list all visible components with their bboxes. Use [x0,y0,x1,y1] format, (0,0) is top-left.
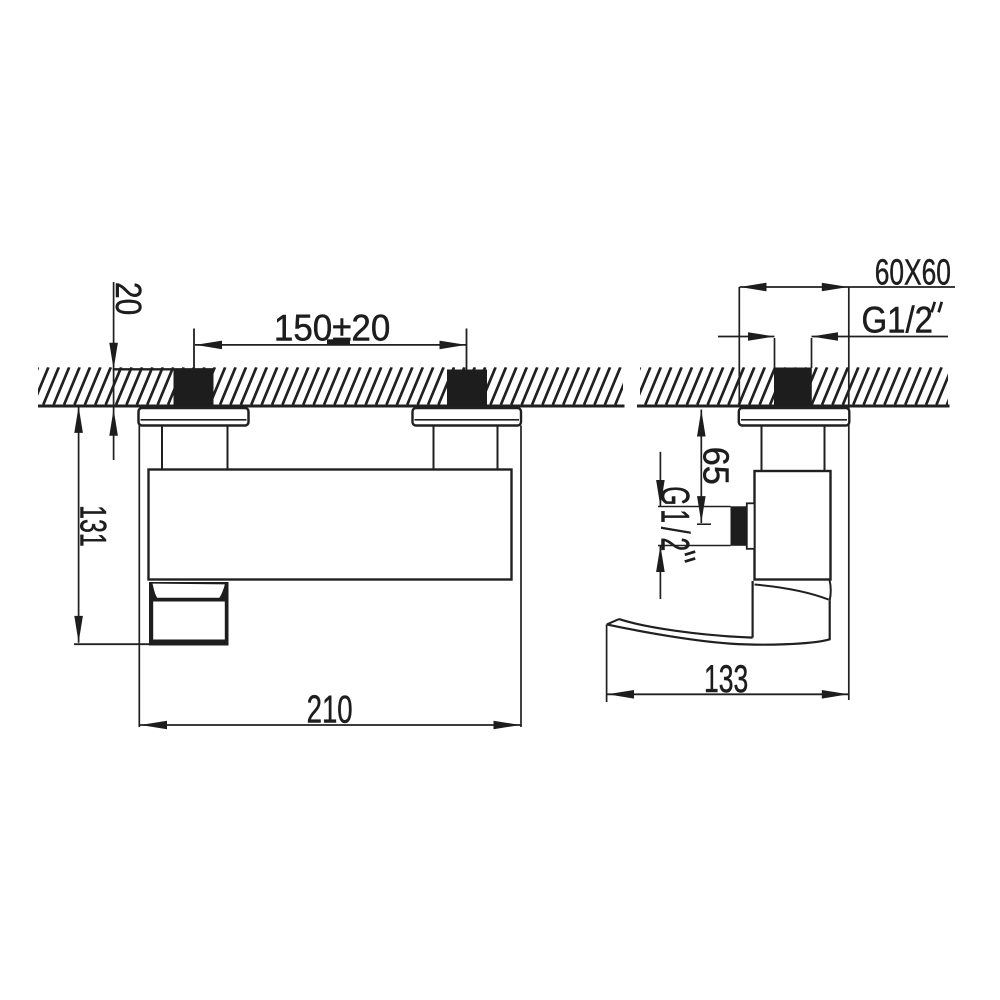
svg-text:131: 131 [72,505,114,547]
svg-text:G1/2: G1/2 [652,486,696,555]
svg-text:65: 65 [695,447,735,485]
svg-text:60X60: 60X60 [875,251,951,292]
svg-text:G1/2: G1/2 [862,300,934,341]
svg-text:133: 133 [704,658,748,701]
svg-text:20: 20 [107,282,148,315]
svg-text:210: 210 [307,689,353,732]
